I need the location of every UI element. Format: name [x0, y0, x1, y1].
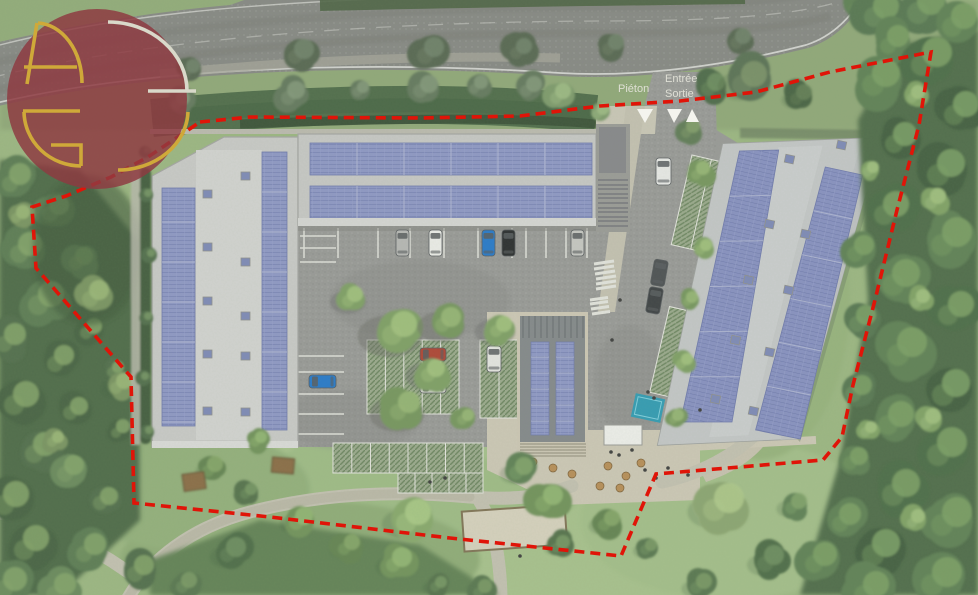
svg-text:Sortie: Sortie: [665, 88, 694, 100]
svg-text:Entrée: Entrée: [665, 73, 697, 85]
svg-text:Piéton: Piéton: [618, 83, 649, 95]
